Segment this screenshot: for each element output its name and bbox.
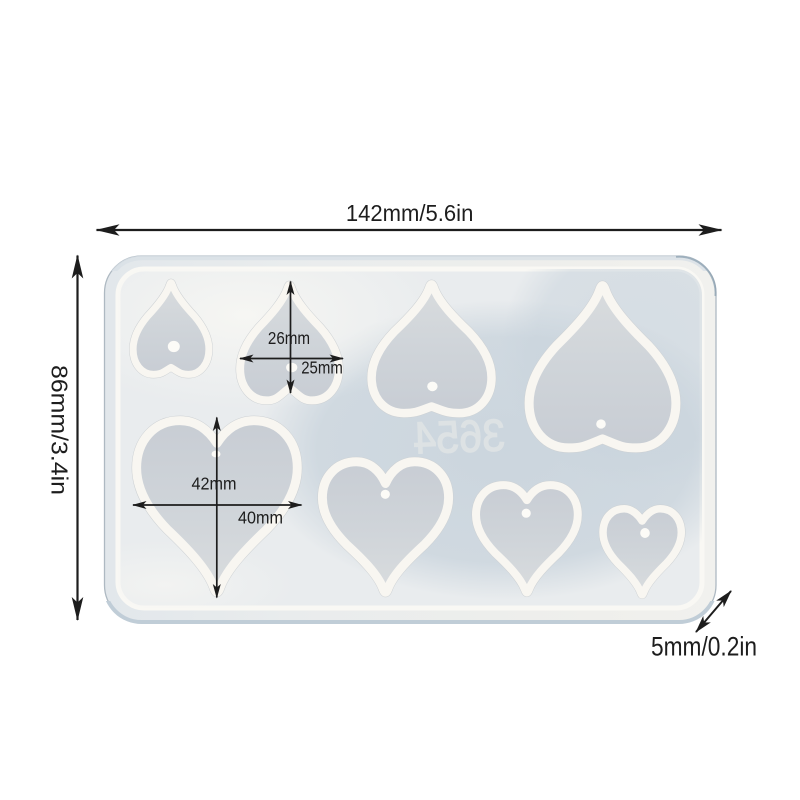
svg-text:5mm/0.2in: 5mm/0.2in [651, 632, 757, 662]
svg-text:86mm/3.4in: 86mm/3.4in [47, 365, 73, 495]
svg-text:25mm: 25mm [301, 357, 343, 377]
svg-text:40mm: 40mm [238, 507, 283, 527]
svg-text:42mm: 42mm [192, 474, 237, 494]
svg-text:26mm: 26mm [268, 328, 310, 348]
svg-text:142mm/5.6in: 142mm/5.6in [346, 200, 474, 226]
